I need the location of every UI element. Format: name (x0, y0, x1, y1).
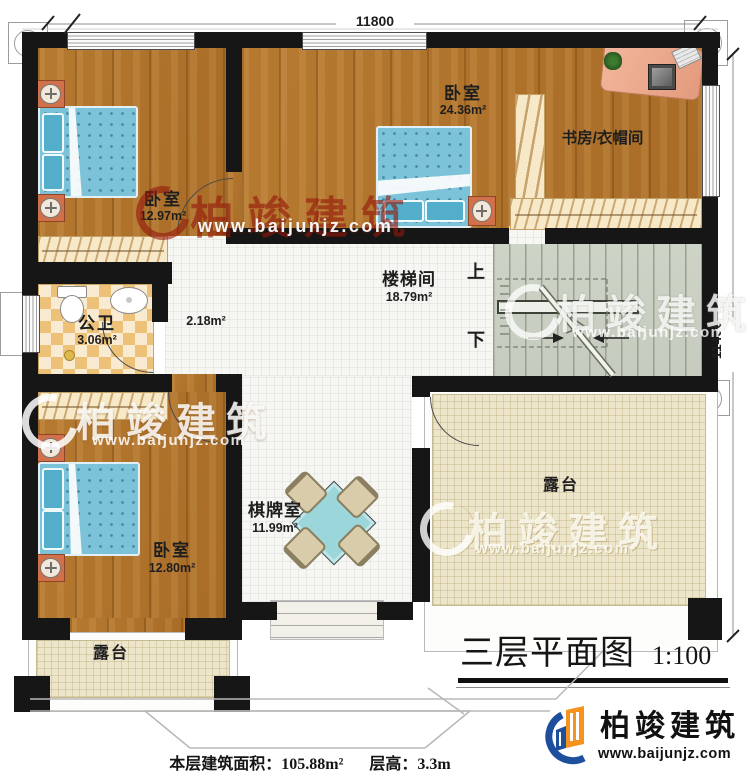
area-hallway: 2.18m² (168, 314, 244, 328)
desk-group (602, 44, 702, 96)
room-area-bedroom-bottom-left: 12.80m² (127, 561, 217, 575)
nightstand (36, 554, 65, 582)
pillow (42, 468, 64, 510)
terrace-pillar (214, 676, 250, 712)
watermark-url: www.baijunjz.com (476, 540, 629, 557)
entry-steps (270, 600, 384, 640)
terrace-pillar (688, 598, 722, 640)
nightstand (468, 196, 496, 226)
wall-segment (377, 602, 413, 620)
wall-segment (185, 618, 226, 640)
wall-segment (22, 262, 172, 284)
floor-stats: 本层建筑面积：105.88m² 层高：3.3m (120, 750, 500, 774)
watermark-url: www.baijunjz.com (572, 324, 725, 341)
room-label-bathroom: 公卫 (52, 314, 142, 334)
bed (38, 106, 138, 198)
pillow (42, 113, 64, 153)
nightstand (36, 80, 65, 108)
room-area-stair-hall: 18.79m² (364, 290, 454, 304)
brand-logo-icon (542, 702, 594, 768)
lamp-icon (40, 84, 61, 104)
dimension-top: 11800 (338, 13, 412, 29)
wall-segment (412, 392, 430, 397)
floor-plan-canvas: 11800 11450 卧室 12.97m² 卧室 24.36m² 书房/衣帽间… (0, 0, 750, 779)
floor-area-text: 本层建筑面积：105.88m² (169, 750, 343, 774)
wall-segment (412, 376, 718, 392)
floor-height-text: 层高：3.3m (369, 750, 450, 774)
room-label-bedroom-bottom-left: 卧室 (127, 541, 217, 561)
pillow (42, 510, 64, 550)
bed (38, 462, 140, 556)
room-label-stair-hall: 楼梯间 (364, 270, 454, 290)
room-area-bedroom-top: 24.36m² (418, 103, 508, 117)
plan-title: 三层平面图 (460, 634, 635, 673)
wall-segment (226, 48, 242, 172)
watermark-url: www.baijunjz.com (92, 432, 245, 449)
watermark-url: www.baijunjz.com (198, 216, 393, 237)
title-underline-thick (458, 678, 728, 683)
pillow (425, 200, 465, 222)
sink-drain (126, 297, 132, 303)
wall-segment (22, 618, 70, 640)
wall-segment (152, 262, 168, 322)
wardrobe (38, 236, 168, 264)
room-area-game-room: 11.99m² (230, 521, 320, 535)
brand-url: www.baijunjz.com (598, 746, 731, 763)
room-label-terrace-left: 露台 (76, 645, 146, 663)
stairs-down-label: 下 (462, 330, 490, 351)
monitor-screen (652, 68, 672, 86)
bed-sheet-fold (62, 108, 84, 196)
room-label-study-cloakroom: 书房/衣帽间 (545, 130, 660, 148)
plant-icon (604, 52, 622, 70)
window (702, 85, 720, 197)
wall-column-frame (0, 292, 24, 356)
wall-segment (545, 228, 718, 244)
nightstand (36, 194, 65, 222)
brand-name: 柏竣建筑 (600, 710, 740, 745)
plan-scale: 1:100 (652, 641, 711, 671)
stairs-up-label: 上 (462, 262, 490, 283)
room-label-bedroom-top: 卧室 (418, 84, 508, 104)
lamp-icon (472, 200, 492, 222)
room-label-game-room: 棋牌室 (230, 501, 320, 521)
wardrobe-rod (515, 214, 697, 216)
floor-drain (64, 350, 75, 361)
wall-segment (242, 602, 277, 620)
title-underline-thin (456, 687, 730, 688)
terrace-pillar (14, 676, 50, 712)
wardrobe-rod (42, 250, 165, 252)
wardrobe (510, 198, 702, 230)
pillow (42, 154, 64, 191)
lamp-icon (40, 558, 61, 578)
sink (110, 287, 148, 314)
monitor-icon (648, 64, 676, 90)
lamp-icon (40, 198, 61, 218)
window (22, 295, 40, 353)
room-area-bathroom: 3.06m² (52, 333, 142, 347)
bed-sheet-fold (62, 464, 84, 554)
hallway-floor (165, 236, 493, 376)
room-label-terrace-right: 露台 (526, 477, 596, 495)
window (302, 32, 427, 50)
window (67, 32, 195, 50)
